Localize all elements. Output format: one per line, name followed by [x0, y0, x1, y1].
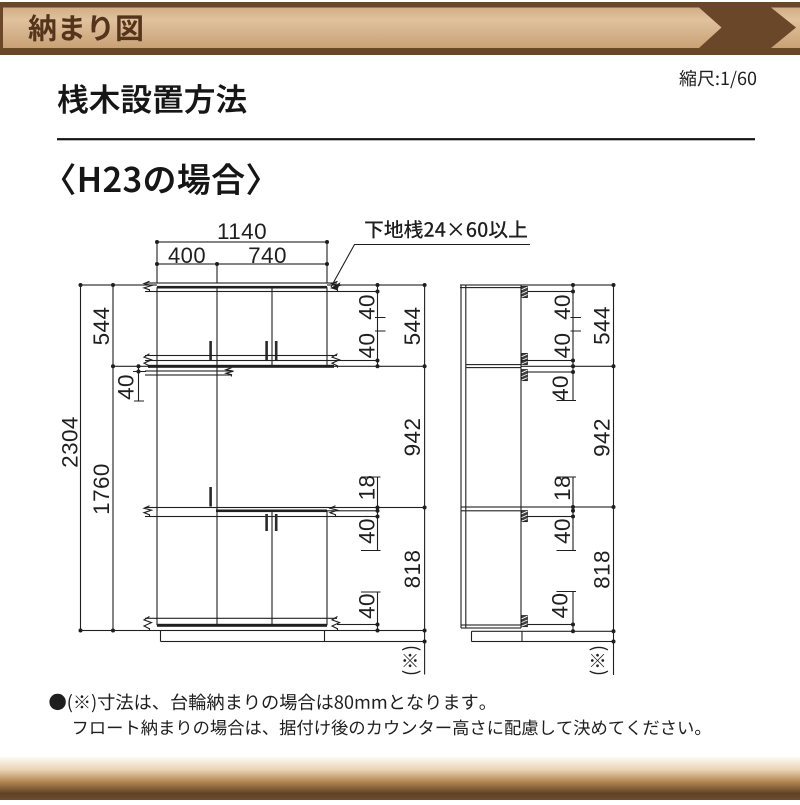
- svg-text:544: 544: [89, 307, 114, 346]
- svg-text:818: 818: [400, 550, 425, 589]
- svg-text:40: 40: [550, 518, 575, 544]
- svg-text:40: 40: [355, 593, 380, 619]
- svg-text:40: 40: [355, 294, 380, 320]
- svg-text:818: 818: [590, 550, 615, 589]
- svg-text:40: 40: [114, 374, 139, 400]
- svg-text:1140: 1140: [217, 219, 267, 244]
- svg-text:18: 18: [355, 475, 380, 501]
- svg-text:400: 400: [168, 243, 206, 268]
- svg-text:40: 40: [550, 333, 575, 359]
- svg-text:40: 40: [550, 294, 575, 320]
- svg-text:740: 740: [248, 243, 287, 268]
- svg-text:942: 942: [400, 418, 425, 457]
- svg-text:18: 18: [550, 475, 575, 501]
- svg-text:40: 40: [548, 375, 573, 401]
- svg-text:544: 544: [400, 307, 425, 346]
- svg-text:2304: 2304: [58, 416, 83, 468]
- svg-text:942: 942: [590, 418, 615, 457]
- svg-text:40: 40: [355, 518, 380, 544]
- svg-text:40: 40: [355, 333, 380, 359]
- svg-text:1760: 1760: [89, 463, 114, 515]
- svg-text:544: 544: [590, 306, 615, 345]
- svg-text:40: 40: [548, 593, 573, 619]
